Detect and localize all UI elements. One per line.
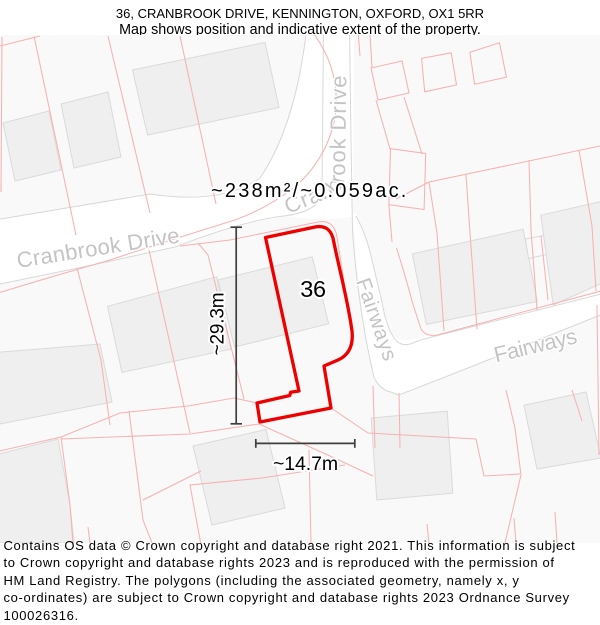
svg-text:36: 36	[300, 276, 326, 302]
svg-text:~14.7m: ~14.7m	[273, 453, 338, 475]
svg-text:~238m²/~0.059ac.: ~238m²/~0.059ac.	[211, 180, 409, 202]
svg-text:~29.3m: ~29.3m	[208, 293, 229, 356]
